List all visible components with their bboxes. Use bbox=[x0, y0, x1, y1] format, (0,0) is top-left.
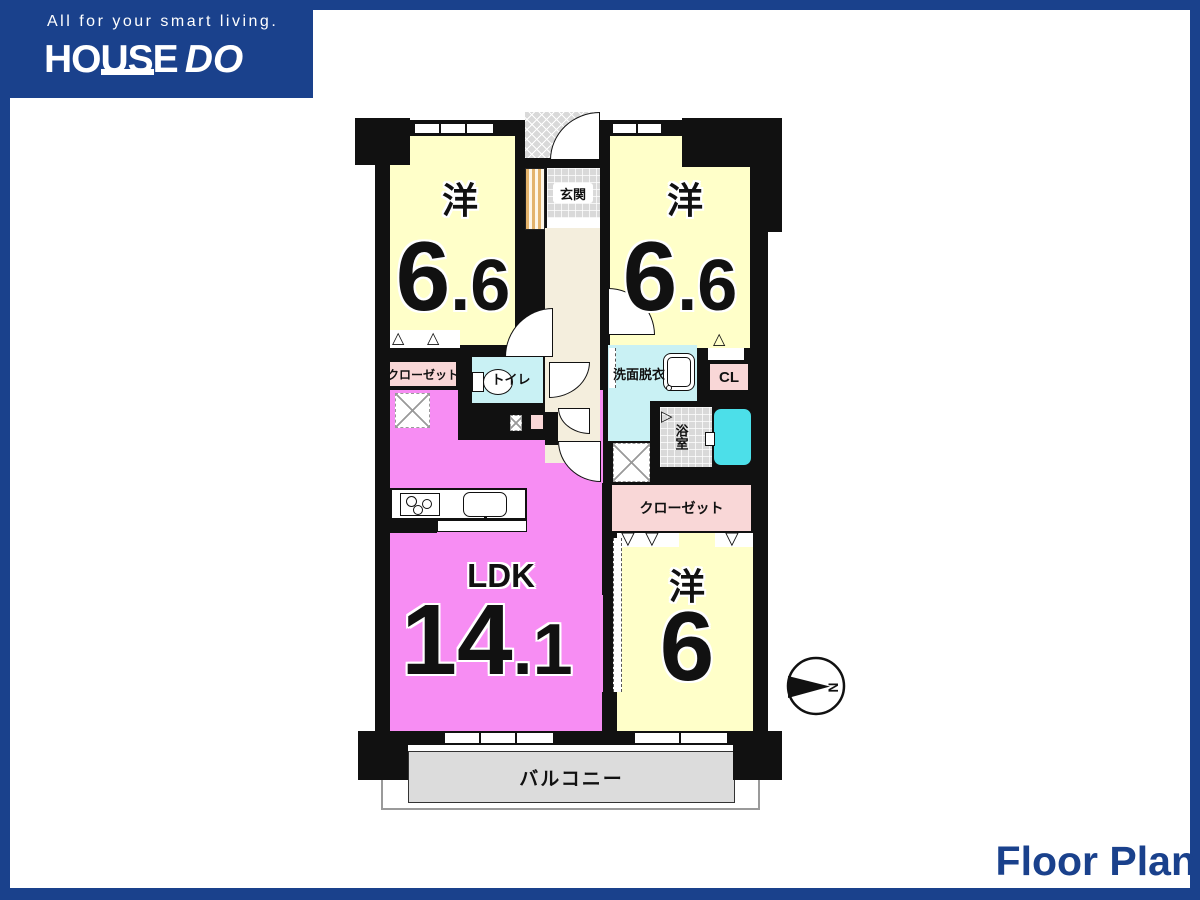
area-main: 6 bbox=[660, 591, 715, 701]
wall-corner-bottom-left bbox=[358, 731, 408, 780]
area-frac: .6 bbox=[677, 246, 737, 326]
window-bottom-bedroom bbox=[635, 731, 727, 745]
window-mullion bbox=[679, 731, 681, 745]
cl-label: CL bbox=[708, 363, 750, 391]
wall-corridor-stub bbox=[545, 412, 558, 445]
washbasin-inner bbox=[667, 357, 691, 387]
pillar-box bbox=[613, 443, 650, 482]
wall-corner-top-left bbox=[355, 118, 410, 165]
wall-corner-bottom-right bbox=[733, 731, 782, 780]
pillar-box bbox=[395, 393, 430, 428]
logo-do: DO bbox=[185, 38, 244, 81]
toilet-label: トイレ bbox=[485, 369, 537, 387]
burner-icon bbox=[413, 505, 423, 515]
entrance-label: 玄関 bbox=[553, 183, 593, 203]
bedroom-right-area: 6.6 bbox=[610, 232, 750, 320]
brand-logotype: HOUSEDO bbox=[44, 38, 243, 82]
area-main: 6 bbox=[396, 221, 451, 331]
kitchen-counter-return bbox=[437, 520, 527, 532]
washroom-label: 洗面脱衣 bbox=[611, 364, 667, 382]
bedroom-left-name: 洋 bbox=[430, 178, 490, 218]
stove bbox=[400, 493, 440, 516]
bathtub-tray bbox=[705, 432, 715, 446]
bedroom-bottom-area: 6 bbox=[627, 602, 747, 690]
brand-logo: All for your smart living. HOUSEDO bbox=[0, 0, 313, 98]
folding-door-icon: △ bbox=[392, 331, 404, 347]
ldk-area: 14.1 bbox=[397, 596, 577, 684]
pillar-slot bbox=[510, 415, 522, 431]
window-mullion bbox=[636, 122, 638, 135]
bathtub bbox=[712, 407, 753, 467]
window-mullion bbox=[515, 731, 517, 745]
folding-door-icon: △ bbox=[713, 332, 725, 348]
page-title: Floor Plan bbox=[996, 838, 1196, 885]
window-top-right bbox=[613, 122, 661, 135]
area-frac: .6 bbox=[450, 246, 510, 326]
window-mullion bbox=[439, 122, 441, 135]
balcony: バルコニー bbox=[408, 751, 735, 803]
entrance-step bbox=[547, 218, 600, 228]
area-frac: .1 bbox=[513, 610, 573, 690]
cl-folding-strip bbox=[708, 348, 744, 360]
niche-patch bbox=[531, 415, 543, 429]
wall-kitchen-stub bbox=[390, 520, 437, 533]
wall-partition-lower bbox=[602, 692, 615, 731]
shoe-cabinet bbox=[525, 168, 545, 230]
washroom-lower bbox=[608, 401, 650, 441]
floor-plan-document: { "brand": { "tagline": "All for your sm… bbox=[0, 0, 1200, 900]
compass-north-label: N bbox=[826, 683, 842, 693]
burner-icon bbox=[422, 499, 432, 509]
wall-corner-top-right bbox=[682, 118, 782, 167]
washbasin-drain bbox=[666, 385, 672, 391]
area-main: 6 bbox=[623, 221, 678, 331]
window-top-left bbox=[415, 122, 493, 135]
ldk-sliding-partition bbox=[613, 538, 622, 692]
floorplan-core: △ △ △ ▽ ▽ ▽ ▷ PS 玄関 bbox=[375, 120, 768, 745]
closet-upper-label: クローゼット bbox=[388, 361, 458, 387]
window-mullion bbox=[479, 731, 481, 745]
closet-lower-label: クローゼット bbox=[610, 483, 753, 533]
window-bottom-ldk bbox=[445, 731, 553, 745]
brand-tagline: All for your smart living. bbox=[47, 13, 278, 31]
folding-door-icon: △ bbox=[427, 331, 439, 347]
bath-label: 浴室 bbox=[672, 416, 690, 458]
bedroom-right-name: 洋 bbox=[655, 178, 715, 218]
window-mullion bbox=[465, 122, 467, 135]
bedroom-left-area: 6.6 bbox=[383, 232, 523, 320]
logo-underbar bbox=[101, 69, 154, 75]
area-main: 14 bbox=[401, 584, 512, 696]
compass: N bbox=[785, 655, 847, 717]
kitchen-sink bbox=[463, 492, 507, 517]
bath-folding-door-icon: ▷ bbox=[661, 409, 673, 424]
